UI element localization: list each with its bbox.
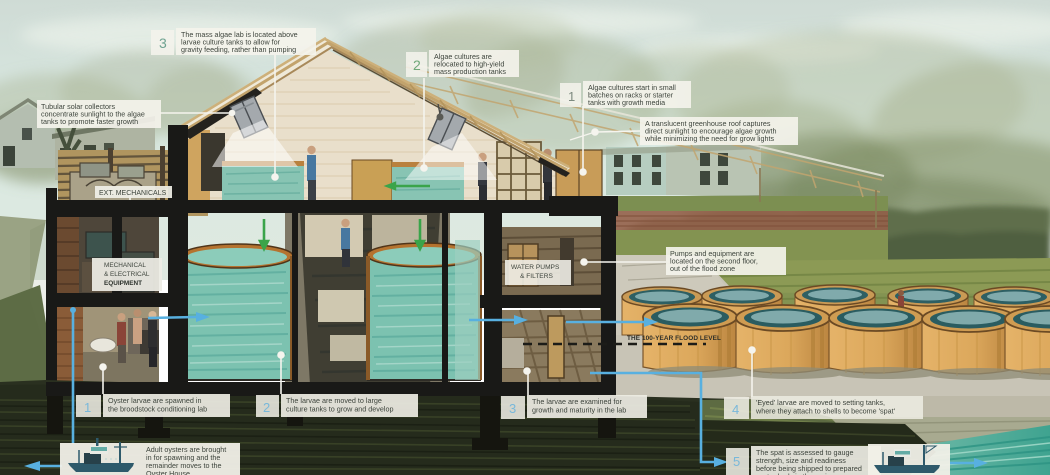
- svg-text:5: 5: [733, 454, 740, 469]
- svg-text:3: 3: [159, 35, 167, 51]
- svg-text:2: 2: [263, 400, 270, 415]
- svg-text:3: 3: [509, 401, 516, 416]
- svg-text:EXT. MECHANICALS: EXT. MECHANICALS: [99, 190, 167, 197]
- svg-text:tanks with growth media: tanks with growth media: [588, 98, 665, 107]
- svg-text:& FILTERS: & FILTERS: [520, 273, 553, 280]
- svg-text:4: 4: [732, 402, 739, 417]
- svg-text:& ELECTRICAL: & ELECTRICAL: [104, 271, 150, 278]
- svg-text:WATER PUMPS: WATER PUMPS: [511, 264, 560, 271]
- svg-text:mass production tanks: mass production tanks: [434, 67, 506, 76]
- svg-text:gravity feeding, rather than p: gravity feeding, rather than pumping: [181, 45, 296, 54]
- svg-text:1: 1: [84, 400, 91, 415]
- svg-text:growth and maturity in the lab: growth and maturity in the lab: [532, 405, 626, 414]
- svg-text:THE 100-YEAR FLOOD LEVEL: THE 100-YEAR FLOOD LEVEL: [627, 335, 721, 342]
- svg-text:the broodstock conditioning la: the broodstock conditioning lab: [108, 404, 207, 413]
- svg-text:out of the flood zone: out of the flood zone: [670, 264, 735, 273]
- svg-text:tanks to promote faster growth: tanks to promote faster growth: [41, 117, 138, 126]
- svg-text:while minimizing the need for: while minimizing the need for grow light…: [644, 134, 774, 143]
- svg-text:Oyster House: Oyster House: [146, 469, 190, 475]
- svg-text:EQUIPMENT: EQUIPMENT: [104, 280, 142, 287]
- svg-text:MECHANICAL: MECHANICAL: [104, 262, 146, 269]
- svg-text:where they attach to shells to: where they attach to shells to become 's…: [755, 406, 896, 415]
- svg-text:2: 2: [413, 57, 421, 73]
- svg-text:1: 1: [568, 89, 575, 104]
- svg-text:culture tanks to grow and deve: culture tanks to grow and develop: [286, 404, 393, 413]
